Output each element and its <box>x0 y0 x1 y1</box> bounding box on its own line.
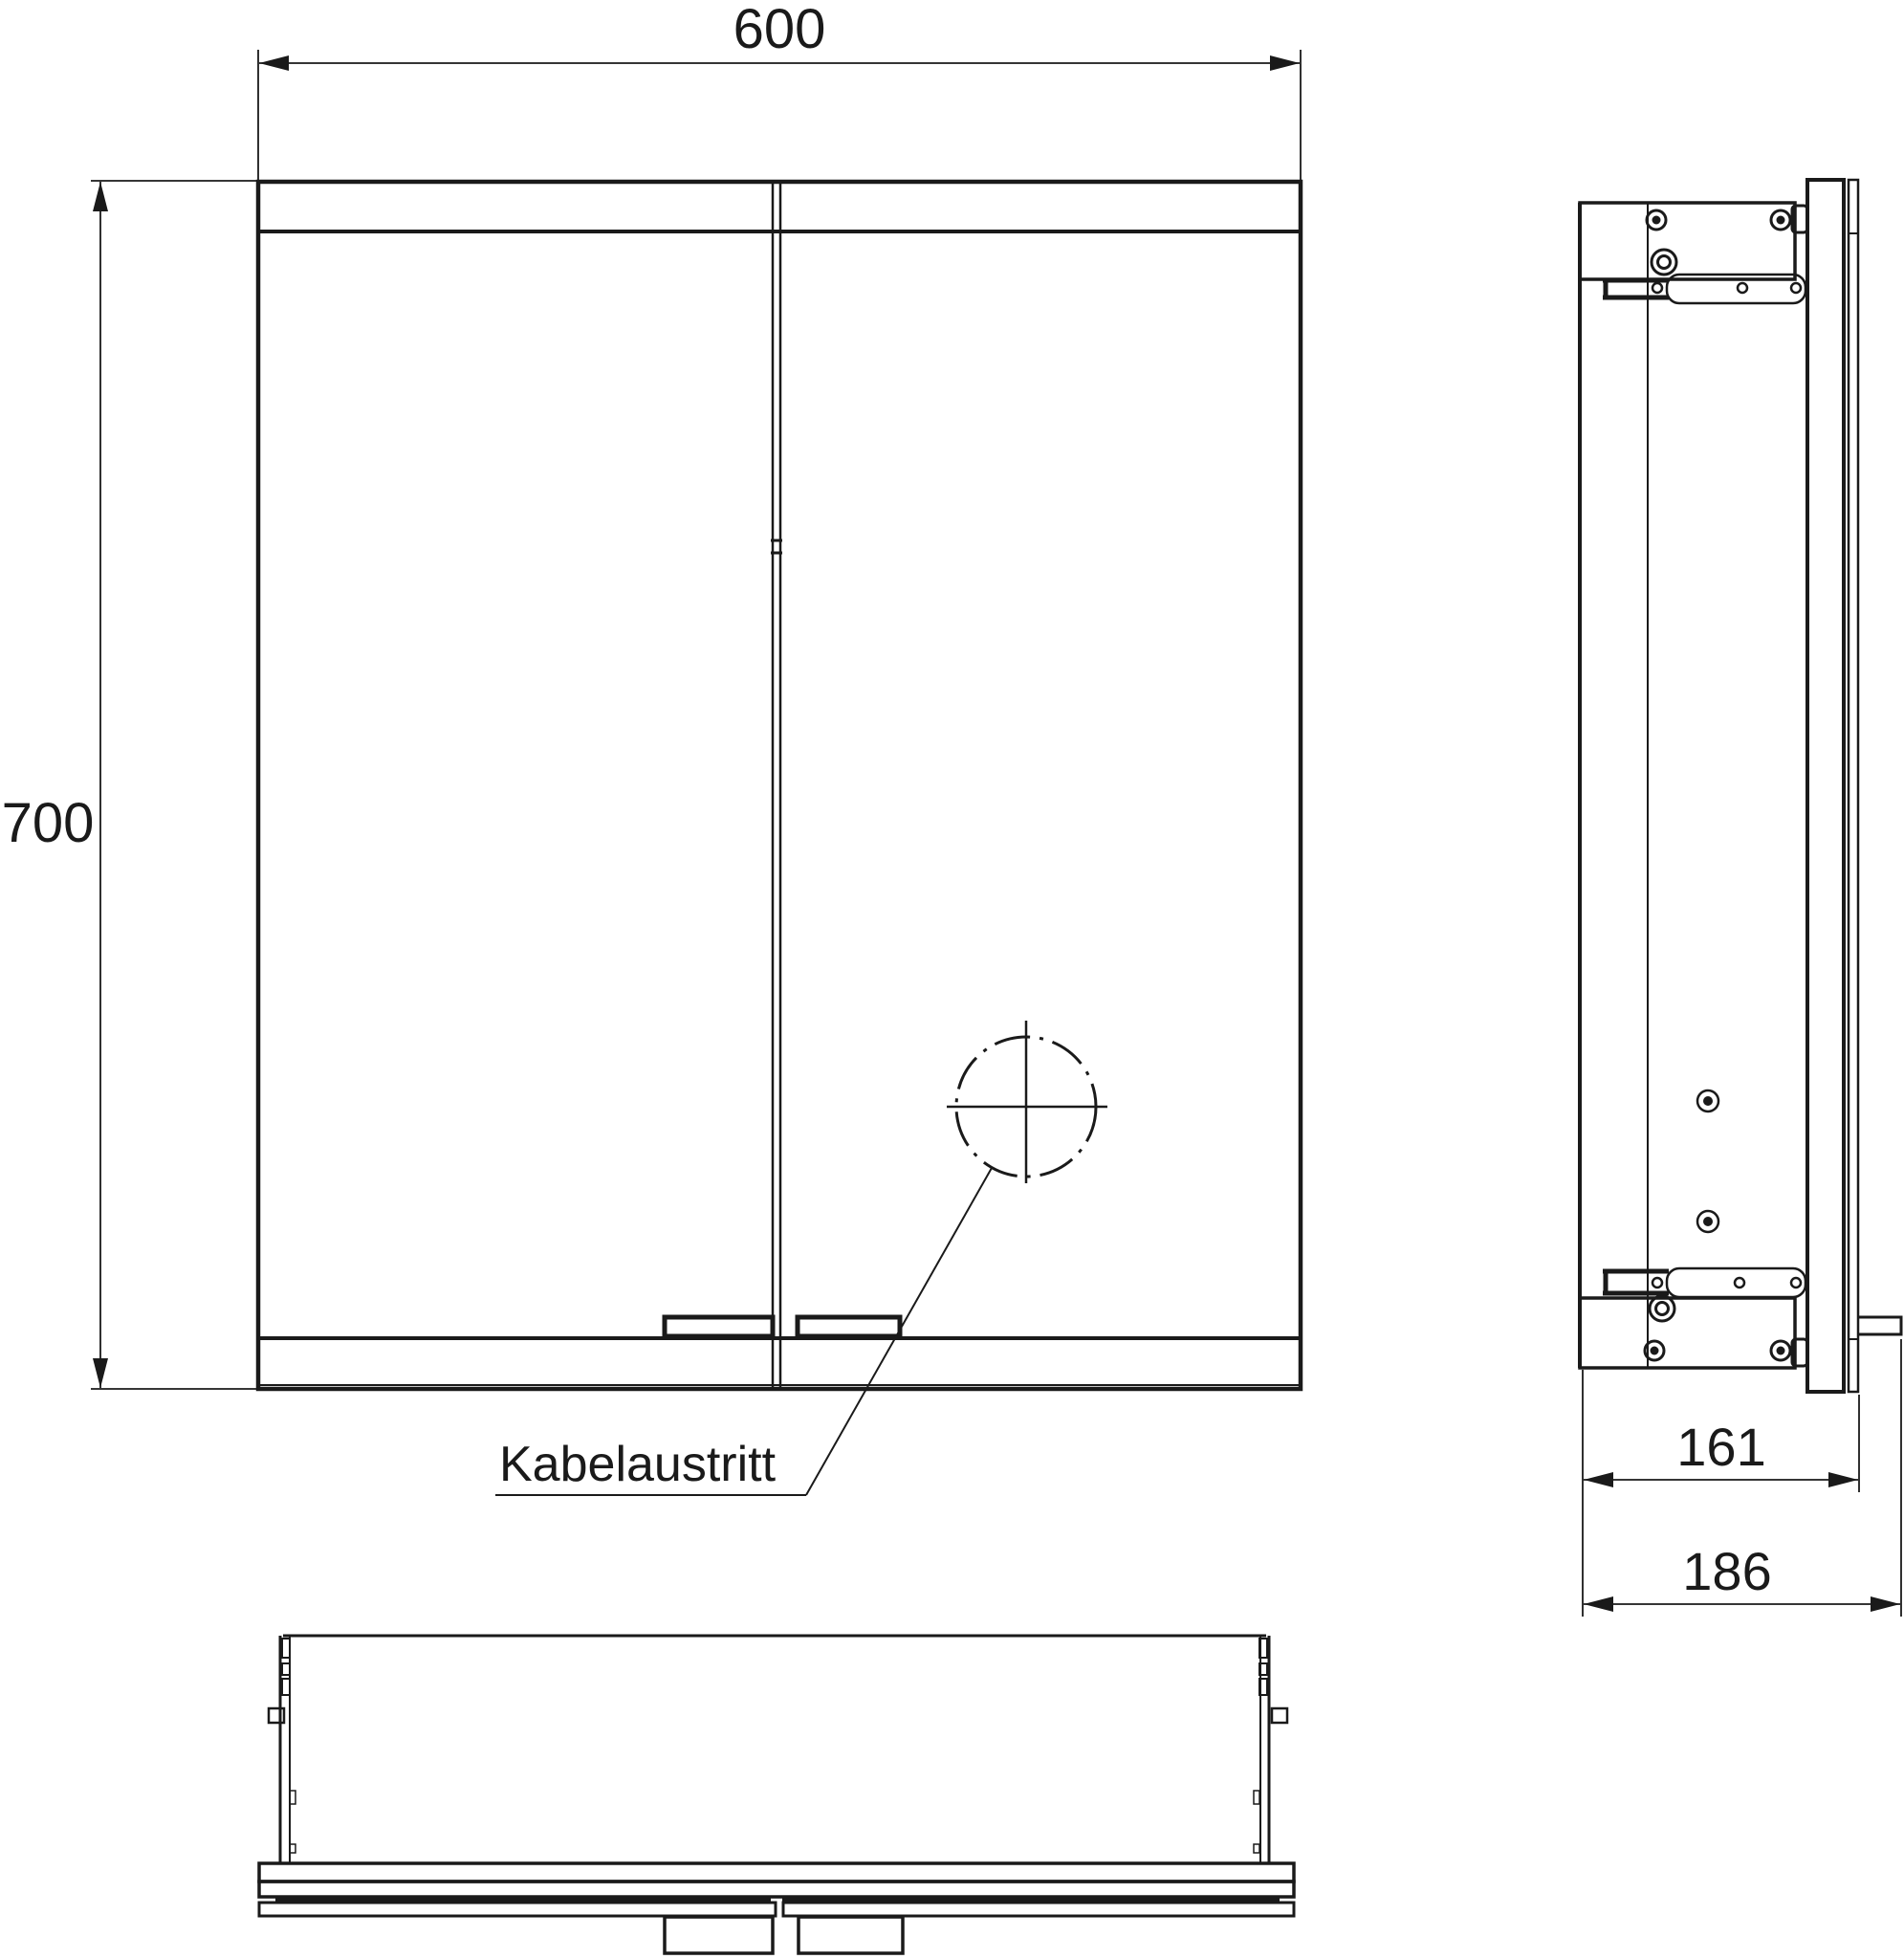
side-view <box>1580 180 1901 1392</box>
dimension-depth-body-text: 161 <box>1676 1417 1765 1477</box>
screw-socket-icon <box>1650 1296 1674 1321</box>
hinge-arm <box>1667 1268 1806 1297</box>
dimension-height-text: 700 <box>2 792 95 854</box>
hinge-pin-icon <box>1791 1278 1801 1288</box>
left-hinge-cup <box>282 1663 290 1675</box>
right-door-handle <box>798 1317 900 1336</box>
dimension-height-700: 700 <box>2 181 258 1389</box>
technical-drawing: Kabelaustritt 600 700 <box>0 0 1904 1959</box>
screw-torx-icon <box>1771 210 1790 230</box>
bottom-front-frame-bar <box>259 1882 1294 1897</box>
cable-outlet-marker <box>947 1021 1107 1183</box>
arrowhead-top-icon <box>93 182 108 211</box>
arrowhead-right-icon <box>1871 1596 1900 1612</box>
arrowhead-bottom-icon <box>93 1358 108 1388</box>
side-bottom-housing <box>1580 1298 1795 1368</box>
screw-socket-icon <box>1652 250 1676 275</box>
hinge-pin-icon <box>1652 1278 1662 1288</box>
hinge-pin-icon <box>1791 283 1801 293</box>
dimension-depth-186: 186 <box>1584 1339 1901 1617</box>
right-wall-clip <box>1254 1791 1259 1804</box>
bottom-left-handle <box>665 1917 773 1953</box>
screw-torx-icon <box>1647 210 1666 230</box>
bottom-view <box>259 1636 1294 1953</box>
side-handle-tab <box>1858 1317 1901 1334</box>
front-view: Kabelaustritt <box>258 182 1301 1495</box>
side-top-housing <box>1580 203 1795 279</box>
screw-back-icon <box>1697 1211 1718 1232</box>
cable-outlet-callout: Kabelaustritt <box>495 1168 992 1495</box>
arrowhead-left-icon <box>1584 1596 1613 1612</box>
hinge-pin-icon <box>1735 1278 1744 1288</box>
arrowhead-left-icon <box>1584 1472 1613 1487</box>
left-hinge-cup <box>282 1679 290 1695</box>
leader-line <box>806 1168 992 1495</box>
dimension-width-text: 600 <box>733 0 826 60</box>
hinge-pin-icon <box>1738 283 1747 293</box>
left-door-handle <box>665 1317 773 1336</box>
side-door-panel <box>1807 180 1844 1392</box>
right-wall-clip <box>1254 1844 1259 1853</box>
drawing-sheet: Kabelaustritt 600 700 <box>0 0 1904 1959</box>
left-mount-tab <box>269 1708 284 1723</box>
arrowhead-right-icon <box>1270 55 1300 71</box>
bottom-right-door <box>783 1903 1294 1916</box>
screw-back-icon <box>1697 1090 1718 1112</box>
arrowhead-left-icon <box>259 55 289 71</box>
bottom-hinge <box>1603 1268 1806 1297</box>
hinge-pin-icon <box>1652 283 1662 293</box>
right-mount-tab <box>1272 1708 1287 1723</box>
arrowhead-right-icon <box>1828 1472 1858 1487</box>
bottom-front-profile-bar <box>259 1863 1294 1882</box>
side-mirror-glass <box>1849 180 1858 1392</box>
left-hinge-cup <box>282 1639 290 1658</box>
bottom-right-handle <box>799 1917 903 1953</box>
cable-outlet-label: Kabelaustritt <box>499 1437 777 1492</box>
bottom-left-door <box>259 1903 776 1916</box>
dimension-width-600: 600 <box>258 0 1301 181</box>
screw-torx-icon <box>1771 1341 1790 1360</box>
dimension-depth-total-text: 186 <box>1682 1541 1771 1601</box>
